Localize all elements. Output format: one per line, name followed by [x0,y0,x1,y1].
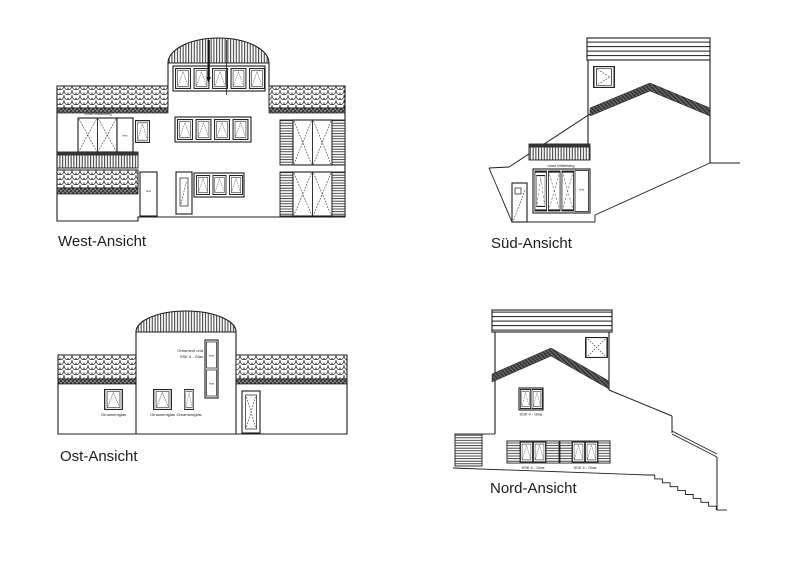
ost-view-label: Ost-Ansicht [60,448,138,465]
ost-window-left [105,390,123,410]
sued-elevation: ohne Mittelsteg fest Süd-Ansicht [489,38,740,252]
elevation-drawing-sheet: ohne Mittelsteg fest fest [0,0,800,561]
west-fixed-panel: fest [117,118,133,152]
west-lower-roof [57,170,138,194]
elevations-svg: ohne Mittelsteg fest fest [0,0,800,561]
ost-ornament-glass-left-label: Ornamentglas [101,412,126,417]
sued-door [512,183,527,222]
west-balcony-door [78,118,117,152]
west-entrance-door [176,172,192,214]
ost-ornament-glass-right-label: Ornamentglas [176,412,201,417]
ost-window-right [184,390,193,410]
ost-elevation: fest fest Ornament und SSK 4 - Glas Orna… [58,311,347,465]
ost-door [242,391,260,433]
nord-exterior-stairs [647,475,716,510]
sued-tower-window [594,67,614,88]
nord-glass-mid-label: SSK 4 - Glas [519,412,542,417]
nord-flat-roof-band [492,310,612,332]
west-roof-left [57,86,168,113]
west-fixed-door: fest [140,172,157,216]
west-ground-window-band [194,173,244,197]
nord-lower-window-group-left [507,441,559,463]
nord-middle-window-pair [519,388,543,410]
west-fixed-panel-label: fest [123,134,128,138]
nord-view-label: Nord-Ansicht [490,480,578,497]
sued-balcony-railing [529,144,590,160]
ost-annotation-ornament-line2: SSK 4 - Glas [180,354,203,359]
west-shuttered-window-lower [280,172,345,216]
nord-tower-window [586,338,607,358]
west-dormer-window-band [173,66,265,91]
west-shuttered-window-upper [280,120,345,165]
nord-right-slope-walls [609,390,727,510]
ost-ornament-glass-mid-label: Ornamentglas [150,412,175,417]
ost-annotation-ornament-line1: Ornament und [177,348,203,353]
west-annotation-no-mullion: ohne Mittelsteg [84,111,111,116]
west-fixed-door-label: fest [146,189,151,193]
nord-lower-window-group-right [560,441,610,463]
ost-dormer-arch [136,311,236,332]
ost-fixed-upper-label: fest [209,354,214,358]
sued-annotation-no-mullion: ohne Mittelsteg [547,163,574,168]
ost-roof-right [236,355,347,384]
west-view-label: West-Ansicht [58,233,147,250]
nord-glass-right-label: SSK 4 - Glas [573,465,596,470]
west-middle-window-band [175,117,251,142]
ost-fixed-lower-label: fest [209,382,214,386]
west-roof-right [269,86,345,113]
ost-window-mid [154,390,172,410]
west-small-window [136,121,150,143]
nord-glass-left-label: SSK 4 - Glas [521,465,544,470]
nord-left-stair-block [455,434,482,466]
sued-fixed-panel-label: fest [579,188,584,192]
sued-window-group: fest [533,169,590,213]
sued-flat-roof-band [587,38,710,60]
west-balcony-railing [57,152,138,168]
ost-roof-left [58,355,136,384]
ost-tower-tall-window: fest fest [205,340,218,398]
west-elevation: ohne Mittelsteg fest fest [57,38,345,250]
nord-elevation: SSK 4 - Glas SSK 4 - Glas SSK 4 - Glas N… [453,310,727,510]
sued-view-label: Süd-Ansicht [491,235,573,252]
